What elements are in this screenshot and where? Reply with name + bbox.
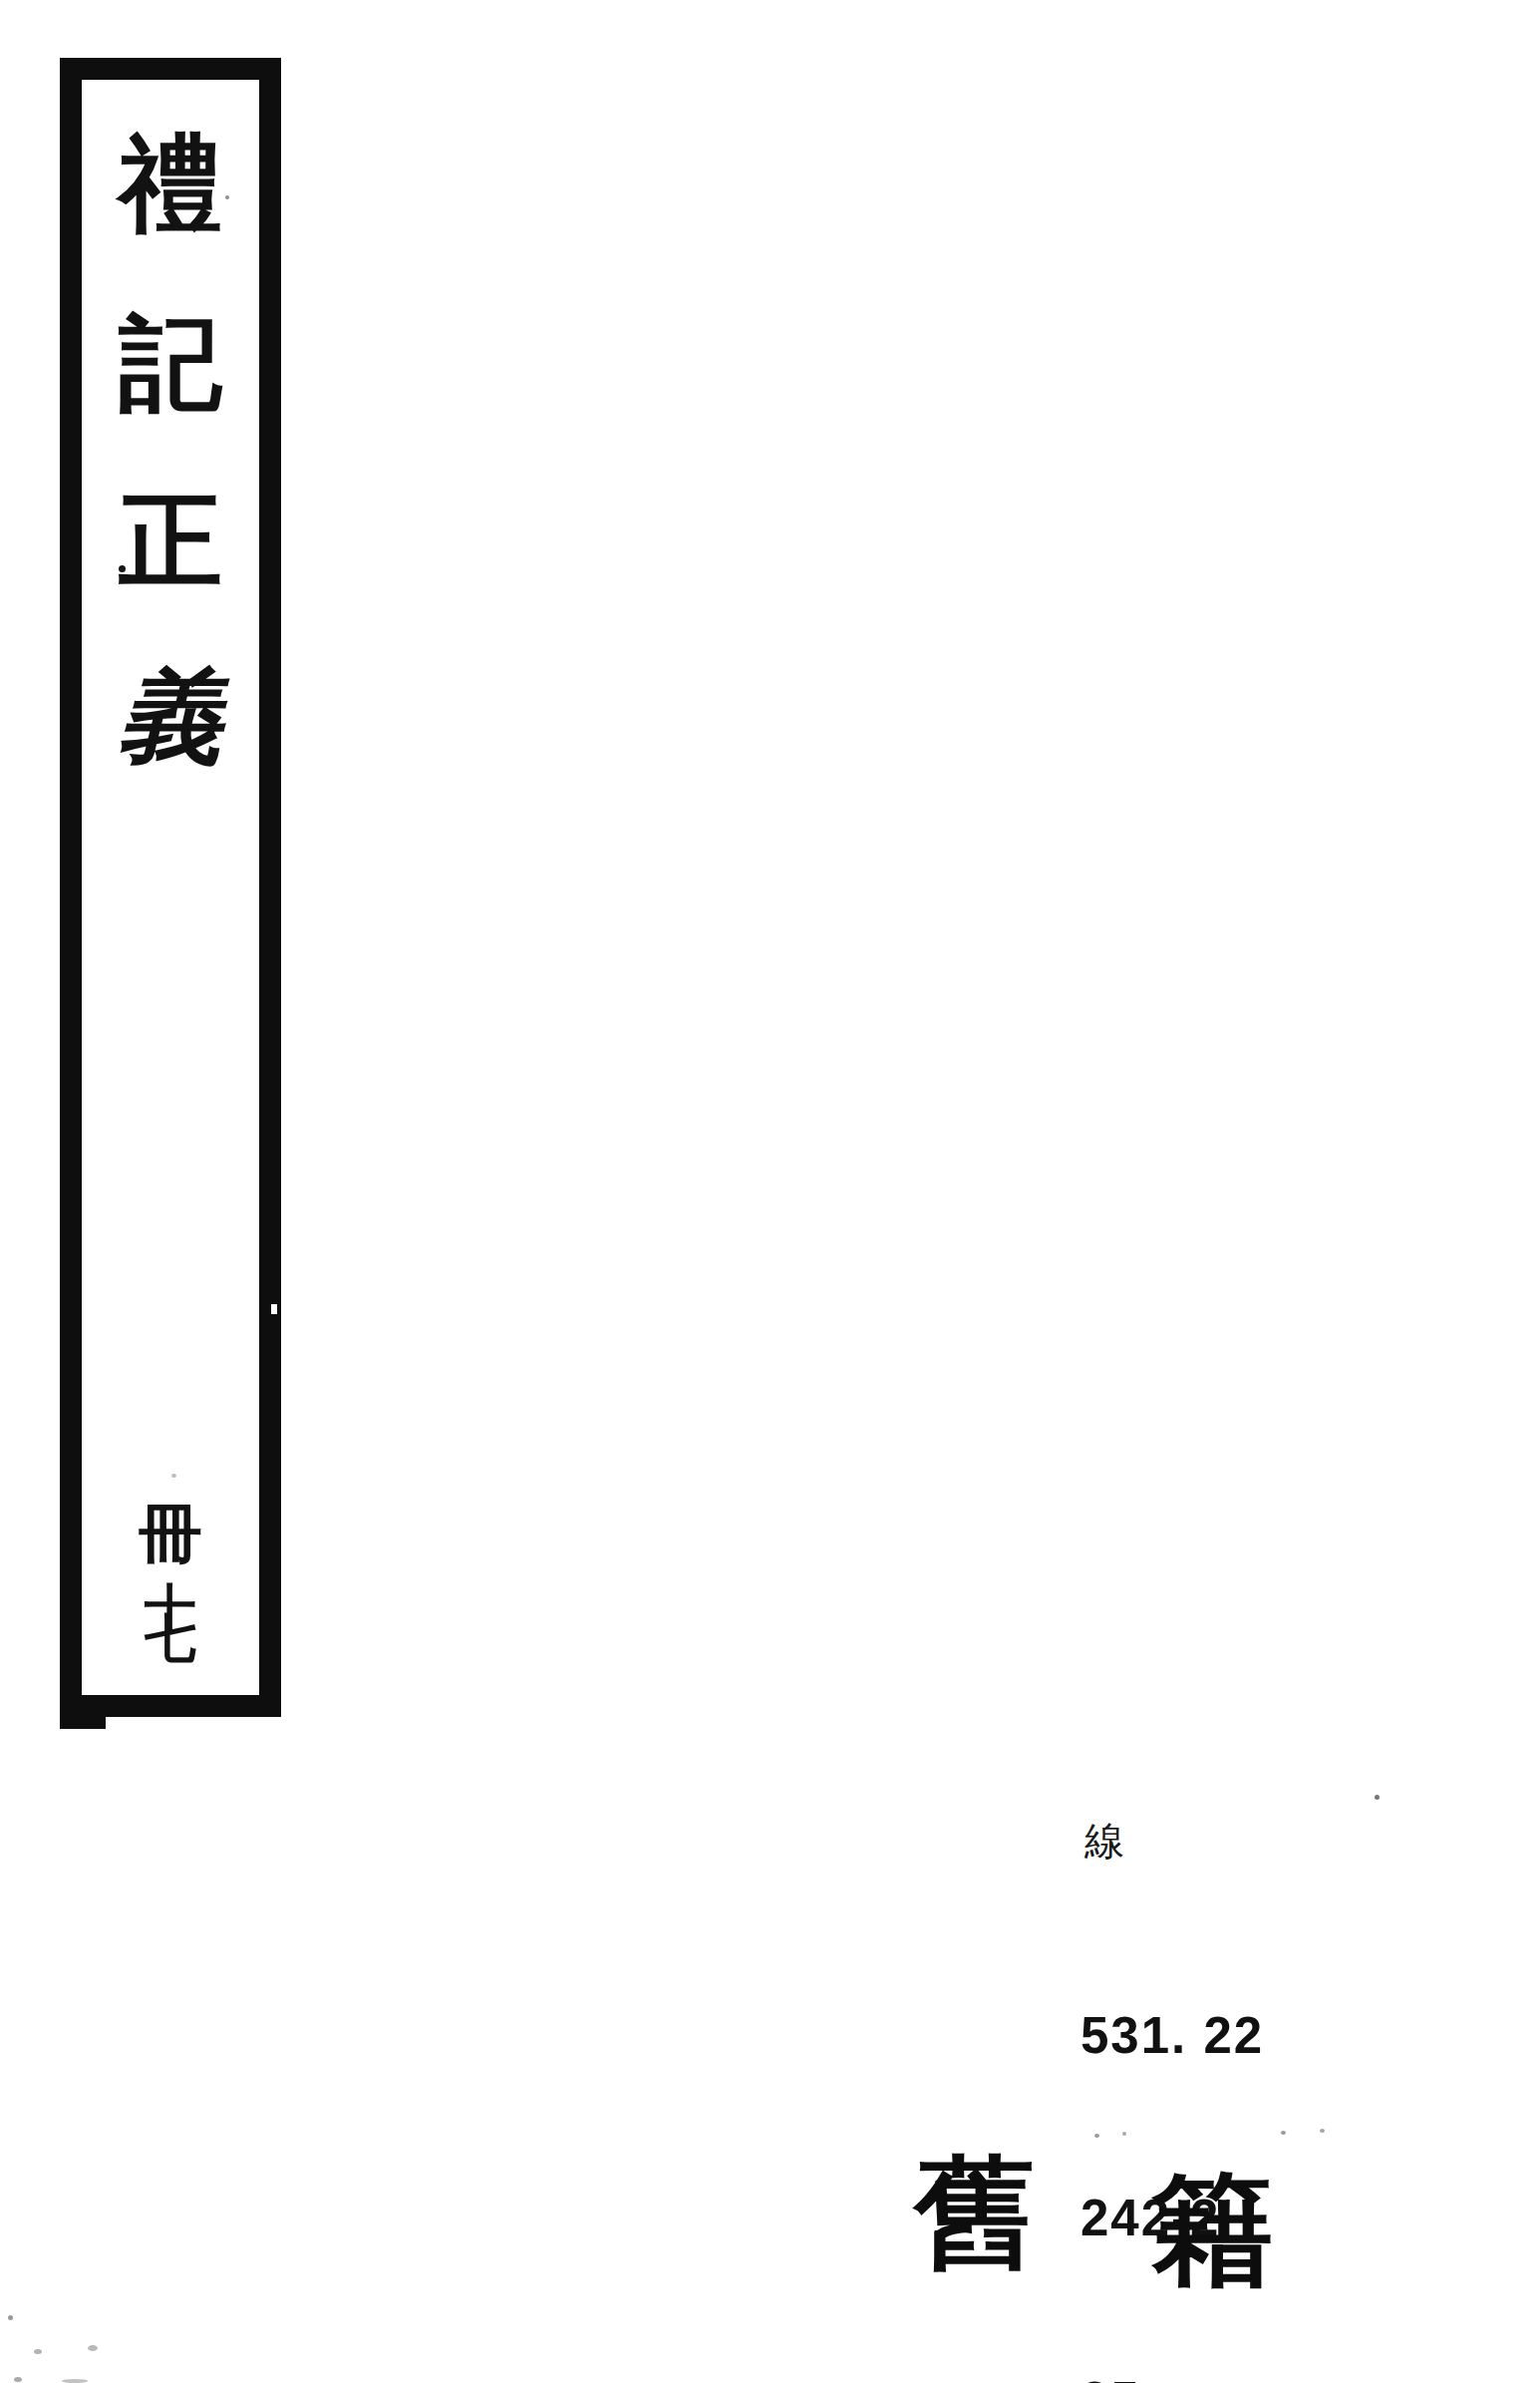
volume-num-bottom-char: 七: [82, 1617, 259, 1659]
border-notch: [271, 1304, 277, 1314]
noise-speck: [34, 2349, 42, 2354]
volume-number-ligature: 十 七: [82, 1587, 259, 1659]
call-number-line-1: 531. 22: [1080, 2005, 1264, 2066]
noise-speck: [14, 2377, 22, 2382]
noise-speck: [1375, 1795, 1380, 1800]
call-number-line-3: 25: [1080, 2370, 1264, 2383]
volume-book-char: 冊: [82, 1502, 259, 1565]
call-number-block: 531. 22 242-2 25 v. 17: [1080, 1883, 1264, 2383]
frame-corner-overshoot: [60, 1711, 106, 1729]
ink-dot: [119, 565, 126, 572]
noise-speck: [225, 195, 229, 199]
stamp-char-ji: 籍: [1152, 2168, 1274, 2289]
title-char-4: 義: [82, 664, 259, 768]
title-char-3: 正: [82, 489, 259, 592]
noise-speck: [1281, 2131, 1286, 2135]
title-char-2: 記: [82, 311, 259, 415]
title-frame: 禮 記 正 義 冊 十 七: [60, 58, 281, 1717]
noise-speck: [88, 2345, 98, 2351]
title-char-1: 禮: [82, 132, 259, 235]
noise-speck: [171, 1474, 176, 1478]
noise-speck: [1122, 2132, 1126, 2136]
noise-speck: [1094, 2134, 1099, 2138]
scanned-book-cover: 禮 記 正 義 冊 十 七 線 531. 22 242-2 25 v. 17 舊…: [0, 0, 1540, 2383]
noise-speck: [8, 2315, 13, 2320]
noise-speck: [1320, 2129, 1325, 2133]
stamp-char-jiu: 舊: [913, 2152, 1035, 2273]
call-number-script-char: 線: [1084, 1821, 1124, 1861]
noise-speck: [62, 2379, 88, 2383]
